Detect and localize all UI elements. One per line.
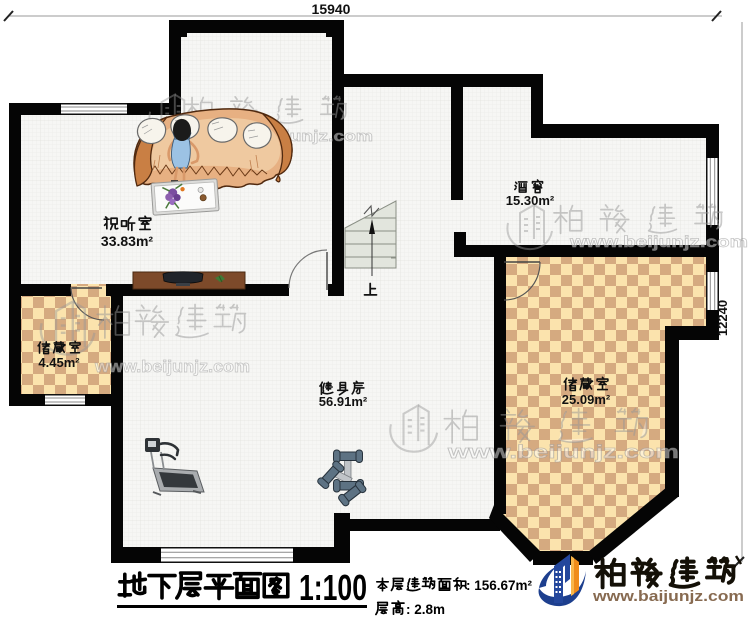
svg-text:1:100: 1:100 bbox=[299, 567, 367, 608]
svg-text:www.beijunjz.com: www.beijunjz.com bbox=[94, 357, 250, 376]
svg-text:15940: 15940 bbox=[312, 1, 351, 17]
svg-text:4.45m²: 4.45m² bbox=[38, 355, 80, 370]
svg-text:: 2.8m: : 2.8m bbox=[406, 602, 445, 617]
svg-text:: 156.67m²: : 156.67m² bbox=[466, 578, 533, 593]
svg-text:25.09m²: 25.09m² bbox=[562, 392, 611, 407]
svg-text:33.83m²: 33.83m² bbox=[101, 233, 153, 249]
svg-text:15.30m²: 15.30m² bbox=[506, 193, 555, 208]
svg-text:56.91m²: 56.91m² bbox=[319, 394, 368, 409]
svg-text:www.baijunjz.com: www.baijunjz.com bbox=[592, 588, 744, 605]
svg-text:www.beijunjz.com: www.beijunjz.com bbox=[569, 234, 748, 251]
svg-text:www.beijunjz.com: www.beijunjz.com bbox=[447, 442, 679, 462]
svg-text:12240: 12240 bbox=[715, 300, 730, 336]
